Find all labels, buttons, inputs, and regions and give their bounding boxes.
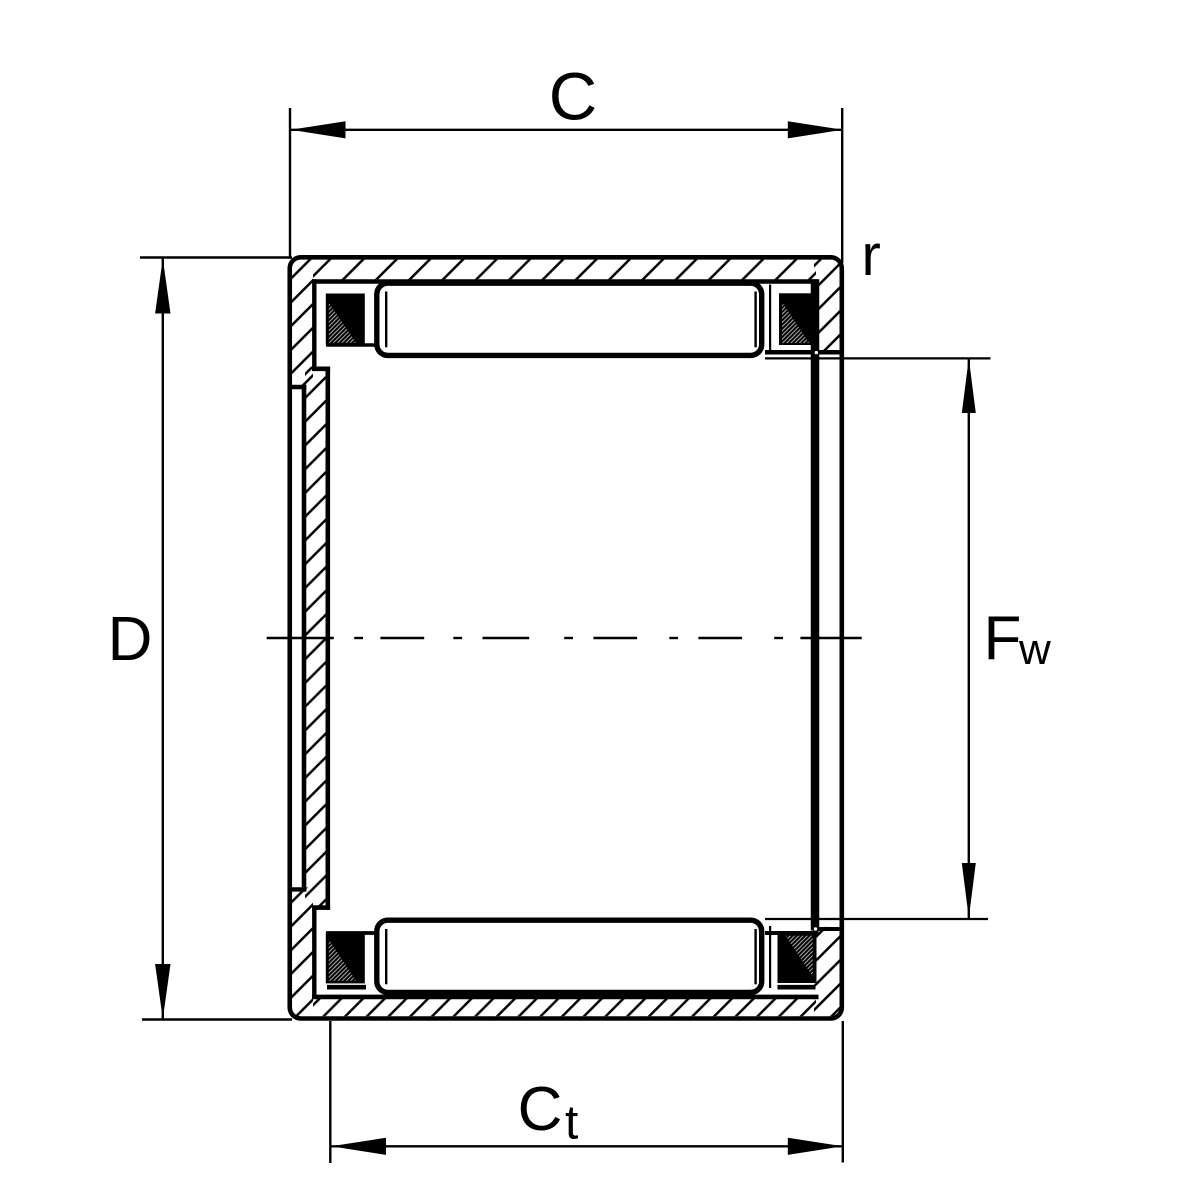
svg-text:C: C	[549, 60, 597, 135]
svg-text:D: D	[108, 605, 153, 674]
svg-text:w: w	[1018, 625, 1051, 674]
svg-text:t: t	[565, 1097, 578, 1150]
svg-text:C: C	[518, 1075, 563, 1144]
svg-text:r: r	[862, 223, 881, 288]
svg-text:F: F	[984, 605, 1022, 674]
